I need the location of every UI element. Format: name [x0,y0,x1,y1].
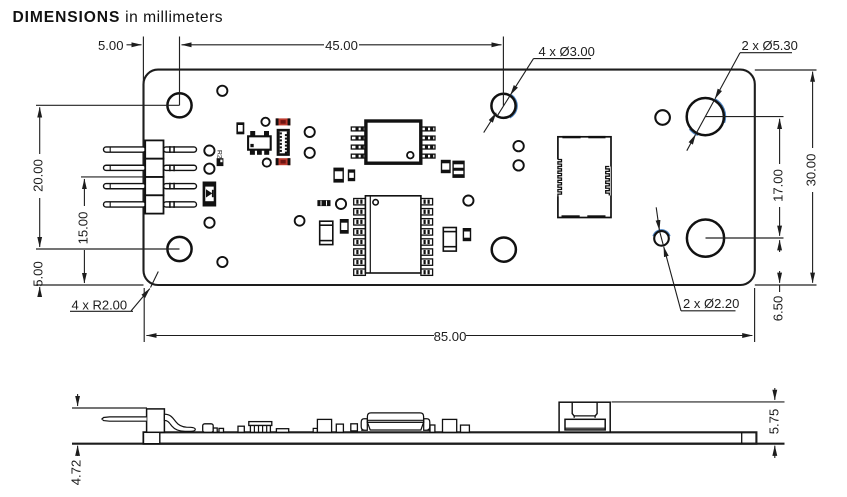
svg-text:2 x Ø5.30: 2 x Ø5.30 [742,38,798,53]
svg-text:4 x R2.00: 4 x R2.00 [72,297,128,312]
svg-text:2 x Ø2.20: 2 x Ø2.20 [683,296,739,311]
svg-text:45.00: 45.00 [325,38,358,53]
svg-text:85.00: 85.00 [434,329,467,344]
svg-text:5.00: 5.00 [31,261,46,286]
svg-text:5.00: 5.00 [98,38,123,53]
svg-text:4 x Ø3.00: 4 x Ø3.00 [539,44,595,59]
svg-text:5.75: 5.75 [767,409,782,434]
svg-text:17.00: 17.00 [771,169,786,202]
svg-text:R2: R2 [215,150,222,159]
svg-text:6.50: 6.50 [771,296,786,321]
svg-text:4.72: 4.72 [69,460,84,485]
svg-text:20.00: 20.00 [31,159,46,192]
svg-text:DIMENSIONS in millimeters: DIMENSIONS in millimeters [13,9,224,26]
svg-text:30.00: 30.00 [804,154,819,187]
svg-text:15.00: 15.00 [75,212,90,245]
